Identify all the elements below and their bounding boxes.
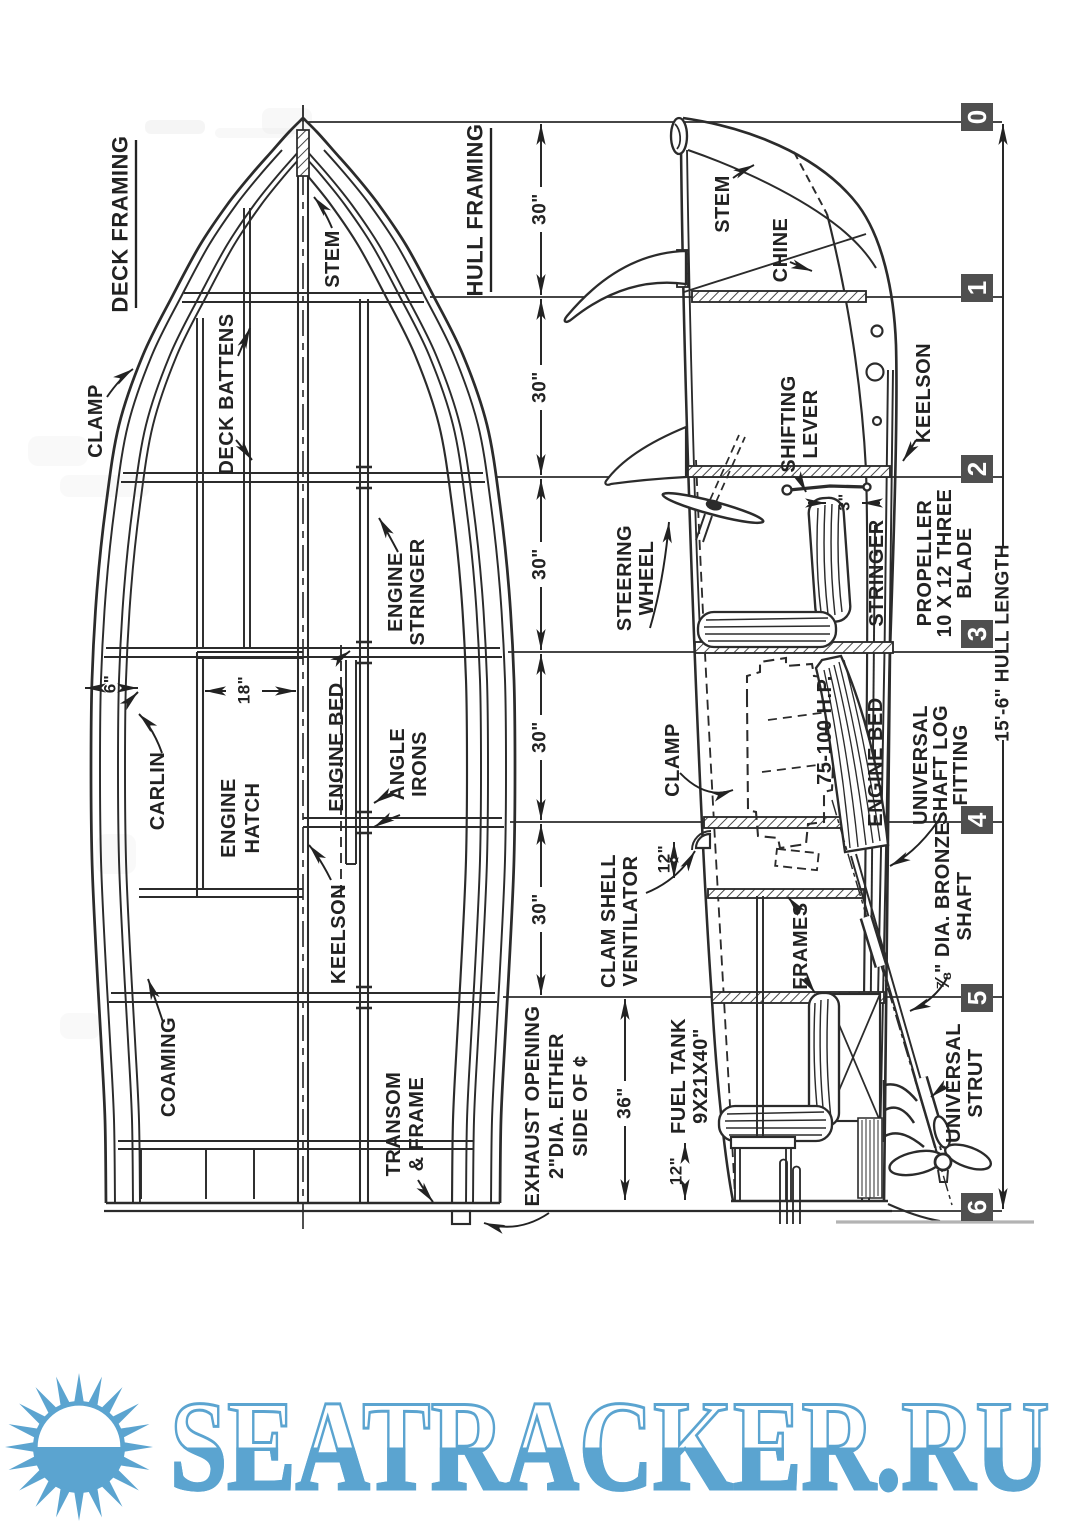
svg-text:LEVER: LEVER <box>800 389 822 458</box>
svg-text:ENGINE: ENGINE <box>385 552 407 632</box>
svg-text:FITTING: FITTING <box>950 724 972 805</box>
svg-text:9X21X40": 9X21X40" <box>690 1028 712 1124</box>
svg-text:HULL FRAMING: HULL FRAMING <box>463 123 488 296</box>
svg-text:12": 12" <box>655 845 674 873</box>
svg-text:UNIVERSAL: UNIVERSAL <box>943 1023 965 1143</box>
svg-text:30": 30" <box>530 193 551 225</box>
svg-text:ENGINE BED: ENGINE BED <box>326 682 348 811</box>
svg-text:STEM: STEM <box>712 175 734 233</box>
svg-text:6: 6 <box>962 1200 992 1214</box>
svg-text:⅞" DIA. BRONZE: ⅞" DIA. BRONZE <box>932 822 954 991</box>
svg-text:SHAFT: SHAFT <box>954 871 976 940</box>
svg-text:STRINGER: STRINGER <box>407 538 429 645</box>
svg-text:STRUT: STRUT <box>965 1048 987 1117</box>
svg-text:ANGLE: ANGLE <box>387 728 409 801</box>
svg-text:30": 30" <box>530 371 551 403</box>
svg-text:30": 30" <box>530 721 551 753</box>
svg-text:STEM: STEM <box>322 230 344 288</box>
svg-text:SHIFTING: SHIFTING <box>778 375 800 472</box>
svg-text:75-100 H.P.: 75-100 H.P. <box>814 675 836 785</box>
svg-text:10 X 12 THREE: 10 X 12 THREE <box>934 489 956 638</box>
svg-text:36": 36" <box>615 1087 636 1119</box>
svg-text:SHAFT LOG: SHAFT LOG <box>930 705 952 825</box>
svg-text:DECK BATTENS: DECK BATTENS <box>216 313 238 474</box>
svg-text:CARLIN: CARLIN <box>147 752 169 831</box>
svg-text:VENTILATOR: VENTILATOR <box>620 855 642 986</box>
svg-text:ENGINE: ENGINE <box>218 778 240 858</box>
svg-text:CHINE: CHINE <box>770 218 792 283</box>
svg-text:2: 2 <box>962 462 992 476</box>
svg-text:4: 4 <box>962 812 992 827</box>
svg-text:CLAMP: CLAMP <box>662 723 684 797</box>
svg-text:BLADE: BLADE <box>954 527 976 598</box>
svg-text:HATCH: HATCH <box>242 782 264 853</box>
svg-text:EXHAUST OPENING: EXHAUST OPENING <box>522 1006 544 1207</box>
svg-text:1: 1 <box>962 281 992 295</box>
svg-text:6": 6" <box>101 675 120 694</box>
svg-text:WHEEL: WHEEL <box>636 541 658 616</box>
svg-text:KEELSON: KEELSON <box>913 343 935 443</box>
svg-text:ENGINE BED: ENGINE BED <box>865 697 887 826</box>
svg-text:COAMING: COAMING <box>158 1017 180 1117</box>
svg-text:KEELSON: KEELSON <box>328 884 350 984</box>
svg-text:CLAMP: CLAMP <box>85 384 107 458</box>
svg-text:3": 3" <box>837 493 854 510</box>
svg-text:18": 18" <box>235 676 254 704</box>
svg-text:FRAMES: FRAMES <box>790 902 812 989</box>
svg-text:12": 12" <box>667 1157 686 1185</box>
svg-text:FUEL TANK: FUEL TANK <box>668 1018 690 1134</box>
svg-text:SIDE OF ¢: SIDE OF ¢ <box>570 1055 592 1156</box>
svg-text:2"DIA. EITHER: 2"DIA. EITHER <box>546 1033 568 1179</box>
svg-text:& FRAME: & FRAME <box>406 1077 428 1172</box>
svg-text:STRINGER: STRINGER <box>866 519 888 626</box>
svg-text:DECK FRAMING: DECK FRAMING <box>108 135 133 312</box>
svg-text:5: 5 <box>962 991 992 1005</box>
svg-text:0: 0 <box>962 110 992 124</box>
svg-text:UNIVERSAL: UNIVERSAL <box>910 705 932 825</box>
svg-text:30": 30" <box>530 548 551 580</box>
svg-text:CLAM SHELL: CLAM SHELL <box>598 854 620 988</box>
svg-text:STEERING: STEERING <box>614 525 636 631</box>
svg-text:IRONS: IRONS <box>409 731 431 797</box>
svg-text:30": 30" <box>530 893 551 925</box>
svg-text:TRANSOM: TRANSOM <box>383 1072 405 1177</box>
svg-text:PROPELLER: PROPELLER <box>914 500 936 627</box>
svg-text:15'-6" HULL LENGTH: 15'-6" HULL LENGTH <box>993 544 1014 742</box>
svg-text:3: 3 <box>962 627 992 641</box>
